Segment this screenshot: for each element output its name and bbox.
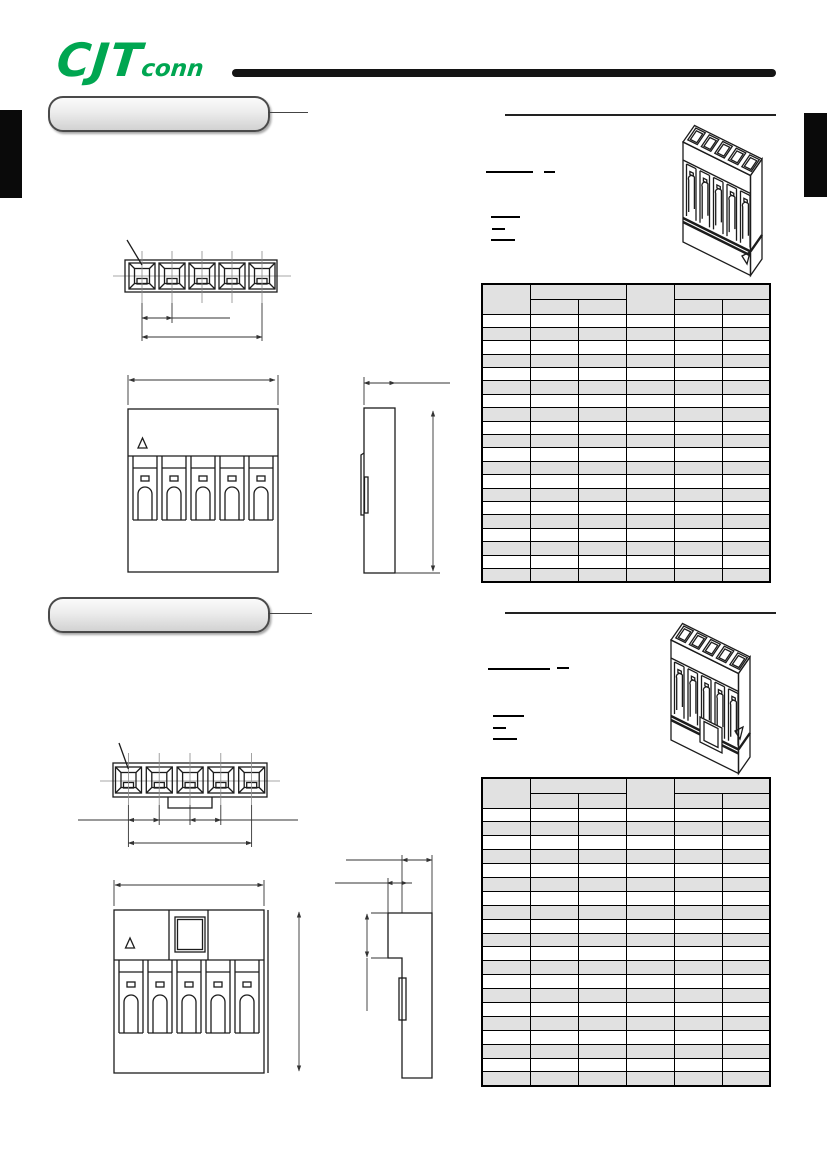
table-row <box>482 421 770 434</box>
table-cell <box>578 864 626 878</box>
table-cell <box>674 448 722 461</box>
table-cell <box>722 1044 770 1058</box>
table-cell <box>626 368 674 381</box>
table-cell <box>722 961 770 975</box>
table-cell <box>722 314 770 327</box>
table-cell <box>626 394 674 407</box>
table-row <box>482 822 770 836</box>
table-cell <box>482 475 530 488</box>
table-cell <box>674 1058 722 1072</box>
table-cell <box>578 905 626 919</box>
table-cell <box>722 1016 770 1030</box>
table-cell <box>626 933 674 947</box>
table-row <box>482 891 770 905</box>
table-row <box>482 836 770 850</box>
table-row <box>482 501 770 514</box>
table-cell <box>722 528 770 541</box>
table-cell <box>722 1058 770 1072</box>
table-cell <box>626 354 674 367</box>
table-cell <box>722 421 770 434</box>
table-cell <box>722 975 770 989</box>
table-row <box>482 435 770 448</box>
table-cell <box>482 1002 530 1016</box>
table-cell <box>674 354 722 367</box>
table-cell <box>578 341 626 354</box>
table-cell <box>482 1072 530 1086</box>
table-cell <box>482 381 530 394</box>
table-header-cell <box>674 284 770 299</box>
table-cell <box>674 555 722 568</box>
table-cell <box>530 1058 578 1072</box>
table-cell <box>578 354 626 367</box>
table-cell <box>530 368 578 381</box>
table-cell <box>626 947 674 961</box>
table-header-cell <box>482 284 530 314</box>
table-cell <box>722 354 770 367</box>
section-1-note-underline <box>491 239 515 241</box>
table-cell <box>722 568 770 581</box>
table-cell <box>578 488 626 501</box>
table-cell <box>578 568 626 581</box>
table-cell <box>530 435 578 448</box>
section-2-front-view-drawing <box>110 875 315 1075</box>
table-cell <box>626 905 674 919</box>
table-cell <box>530 808 578 822</box>
table-cell <box>674 836 722 850</box>
table-cell <box>578 1072 626 1086</box>
polarity-triangle-icon <box>126 938 135 948</box>
table-header-cell <box>530 778 626 793</box>
table-cell <box>674 381 722 394</box>
table-row <box>482 568 770 581</box>
table-cell <box>722 408 770 421</box>
table-cell <box>674 919 722 933</box>
table-row <box>482 864 770 878</box>
table-cell <box>530 327 578 340</box>
table-cell <box>674 933 722 947</box>
table-cell <box>482 368 530 381</box>
table-cell <box>722 555 770 568</box>
table-cell <box>626 961 674 975</box>
table-cell <box>626 555 674 568</box>
housing-profile <box>388 913 432 1078</box>
latch-window <box>175 917 205 952</box>
table-cell <box>482 555 530 568</box>
table-cell <box>674 461 722 474</box>
table-subheader-cell <box>530 299 578 314</box>
table-row <box>482 808 770 822</box>
table-cell <box>626 822 674 836</box>
table-cell <box>482 961 530 975</box>
table-cell <box>674 341 722 354</box>
table-cell <box>530 542 578 555</box>
datasheet-page: CJTconn <box>0 0 827 1169</box>
brand-logo-main: CJT <box>54 33 145 87</box>
table-cell <box>578 947 626 961</box>
table-cell <box>482 850 530 864</box>
table-cell <box>674 864 722 878</box>
table-row <box>482 1044 770 1058</box>
table-row <box>482 1072 770 1086</box>
header-bar <box>232 69 776 77</box>
table-row <box>482 975 770 989</box>
table-cell <box>674 822 722 836</box>
table-cell <box>482 919 530 933</box>
table-cell <box>482 568 530 581</box>
table-cell <box>578 421 626 434</box>
table-row <box>482 919 770 933</box>
right-edge-tab <box>804 113 827 197</box>
table-cell <box>578 368 626 381</box>
table-cell <box>578 327 626 340</box>
table-cell <box>578 381 626 394</box>
table-cell <box>626 850 674 864</box>
table-cell <box>674 975 722 989</box>
table-cell <box>482 501 530 514</box>
section-1-front-view-drawing <box>118 372 288 577</box>
table-cell <box>722 542 770 555</box>
table-cell <box>530 864 578 878</box>
table-cell <box>482 1016 530 1030</box>
table-cell <box>530 891 578 905</box>
table-cell <box>722 515 770 528</box>
table-cell <box>626 877 674 891</box>
table-cell <box>578 1016 626 1030</box>
table-cell <box>530 1002 578 1016</box>
table-cell <box>482 435 530 448</box>
section-1-rule <box>505 114 776 116</box>
table-cell <box>626 421 674 434</box>
table-cell <box>482 488 530 501</box>
table-cell <box>626 975 674 989</box>
table-header-cell <box>530 284 626 299</box>
section-2-rule <box>505 612 776 614</box>
section-2-note-underline <box>493 715 524 717</box>
parts-table <box>481 777 771 1087</box>
table-cell <box>626 501 674 514</box>
table-cell <box>674 475 722 488</box>
table-cell <box>578 822 626 836</box>
section-1-note-underline <box>486 171 533 173</box>
table-cell <box>482 394 530 407</box>
table-cell <box>722 947 770 961</box>
section-1-pill-leader-line <box>268 112 308 113</box>
table-cell <box>626 1072 674 1086</box>
table-cell <box>626 461 674 474</box>
table-cell <box>722 933 770 947</box>
table-cell <box>482 864 530 878</box>
table-row <box>482 368 770 381</box>
table-cell <box>578 933 626 947</box>
table-cell <box>530 850 578 864</box>
table-cell <box>578 314 626 327</box>
table-cell <box>674 1002 722 1016</box>
table-cell <box>530 975 578 989</box>
table-cell <box>626 542 674 555</box>
table-cell <box>530 448 578 461</box>
table-cell <box>530 568 578 581</box>
table-row <box>482 555 770 568</box>
table-subheader-cell <box>674 793 722 808</box>
table-cell <box>674 808 722 822</box>
table-cell <box>530 1044 578 1058</box>
parts-table <box>481 283 771 583</box>
table-cell <box>626 989 674 1003</box>
table-subheader-cell <box>722 299 770 314</box>
table-cell <box>626 1044 674 1058</box>
table-subheader-cell <box>578 793 626 808</box>
table-cell <box>578 555 626 568</box>
table-cell <box>530 461 578 474</box>
table-subheader-cell <box>530 793 578 808</box>
table-cell <box>722 448 770 461</box>
section-2-note-underline <box>493 738 517 740</box>
table-cell <box>482 327 530 340</box>
table-row <box>482 475 770 488</box>
table-cell <box>530 501 578 514</box>
table-cell <box>626 448 674 461</box>
table-cell <box>626 314 674 327</box>
table-cell <box>530 488 578 501</box>
table-row <box>482 947 770 961</box>
table-cell <box>482 354 530 367</box>
section-2-note-underline <box>493 727 506 729</box>
table-cell <box>530 1030 578 1044</box>
table-row <box>482 327 770 340</box>
table-cell <box>530 394 578 407</box>
table-cell <box>578 475 626 488</box>
table-row <box>482 989 770 1003</box>
table-cell <box>530 933 578 947</box>
table-cell <box>578 435 626 448</box>
table-row <box>482 341 770 354</box>
left-edge-tab <box>0 110 22 198</box>
table-row <box>482 314 770 327</box>
section-2-isometric-drawing <box>658 618 793 778</box>
table-cell <box>578 808 626 822</box>
table-cell <box>530 822 578 836</box>
table-cell <box>530 341 578 354</box>
table-row <box>482 394 770 407</box>
table-cell <box>578 515 626 528</box>
table-cell <box>578 975 626 989</box>
table-cell <box>722 864 770 878</box>
table-cell <box>530 989 578 1003</box>
table-cell <box>722 1030 770 1044</box>
table-cell <box>722 327 770 340</box>
table-cell <box>530 555 578 568</box>
table-cell <box>626 891 674 905</box>
table-subheader-cell <box>722 793 770 808</box>
table-row <box>482 850 770 864</box>
table-cell <box>674 850 722 864</box>
leader-line <box>119 743 128 769</box>
table-cell <box>674 989 722 1003</box>
table-cell <box>482 528 530 541</box>
table-cell <box>482 836 530 850</box>
section-1-note-underline <box>544 171 555 173</box>
table-cell <box>674 421 722 434</box>
table-cell <box>482 1058 530 1072</box>
table-cell <box>722 891 770 905</box>
table-cell <box>626 864 674 878</box>
table-cell <box>482 341 530 354</box>
table-cell <box>530 1072 578 1086</box>
table-row <box>482 877 770 891</box>
table-cell <box>482 1044 530 1058</box>
table-cell <box>530 515 578 528</box>
table-row <box>482 933 770 947</box>
table-cell <box>626 1002 674 1016</box>
table-cell <box>530 905 578 919</box>
table-cell <box>482 975 530 989</box>
brand-logo: CJTconn <box>54 34 207 86</box>
table-cell <box>626 568 674 581</box>
table-cell <box>578 501 626 514</box>
table-cell <box>626 341 674 354</box>
table-cell <box>578 408 626 421</box>
table-cell <box>530 1016 578 1030</box>
table-cell <box>674 1072 722 1086</box>
table-cell <box>482 989 530 1003</box>
table-cell <box>674 435 722 448</box>
table-cell <box>674 408 722 421</box>
table-cell <box>530 919 578 933</box>
table-cell <box>482 542 530 555</box>
table-row <box>482 408 770 421</box>
table-cell <box>626 836 674 850</box>
table-cell <box>578 542 626 555</box>
table-cell <box>482 461 530 474</box>
table-cell <box>722 1002 770 1016</box>
table-cell <box>626 1016 674 1030</box>
table-cell <box>674 394 722 407</box>
table-header-cell <box>674 778 770 793</box>
table-cell <box>722 501 770 514</box>
table-cell <box>722 919 770 933</box>
section-2-note-underline <box>488 668 550 670</box>
table-cell <box>482 408 530 421</box>
table-cell <box>674 961 722 975</box>
table-cell <box>674 568 722 581</box>
table-cell <box>626 515 674 528</box>
table-cell <box>674 542 722 555</box>
table-cell <box>482 877 530 891</box>
table-row <box>482 381 770 394</box>
table-cell <box>674 528 722 541</box>
table-cell <box>530 947 578 961</box>
table-cell <box>578 1044 626 1058</box>
table-cell <box>530 961 578 975</box>
table-cell <box>674 368 722 381</box>
table-cell <box>722 488 770 501</box>
table-cell <box>578 1030 626 1044</box>
table-cell <box>578 891 626 905</box>
table-cell <box>530 877 578 891</box>
table-cell <box>578 461 626 474</box>
table-cell <box>674 1030 722 1044</box>
table-row <box>482 448 770 461</box>
table-row <box>482 1016 770 1030</box>
table-row <box>482 528 770 541</box>
table-cell <box>674 947 722 961</box>
section-1-note-underline <box>491 216 520 218</box>
table-cell <box>722 877 770 891</box>
table-cell <box>482 905 530 919</box>
table-cell <box>482 947 530 961</box>
table-cell <box>674 1044 722 1058</box>
table-header-cell <box>626 284 674 314</box>
table-cell <box>482 515 530 528</box>
table-cell <box>626 808 674 822</box>
table-cell <box>722 381 770 394</box>
table-cell <box>482 822 530 836</box>
section-1-pill-header <box>48 96 270 132</box>
table-cell <box>674 877 722 891</box>
table-cell <box>578 448 626 461</box>
table-cell <box>482 891 530 905</box>
table-cell <box>530 408 578 421</box>
table-cell <box>722 368 770 381</box>
table-subheader-cell <box>578 299 626 314</box>
table-cell <box>722 836 770 850</box>
brand-logo-sub: conn <box>140 56 205 82</box>
section-2-top-view-drawing <box>75 735 305 860</box>
table-cell <box>722 822 770 836</box>
table-cell <box>722 905 770 919</box>
table-cell <box>578 919 626 933</box>
table-row <box>482 461 770 474</box>
table-cell <box>482 933 530 947</box>
table-subheader-cell <box>674 299 722 314</box>
latch-window-boss <box>700 717 722 753</box>
table-cell <box>722 808 770 822</box>
table-row <box>482 961 770 975</box>
table-header-cell <box>482 778 530 808</box>
section-2-pill-header <box>48 597 270 633</box>
table-cell <box>626 475 674 488</box>
table-cell <box>530 314 578 327</box>
polarity-triangle-icon <box>138 438 147 448</box>
table-cell <box>626 1058 674 1072</box>
section-1-top-view-drawing <box>105 235 345 345</box>
table-row <box>482 1058 770 1072</box>
table-cell <box>722 394 770 407</box>
iso-side-face <box>751 159 763 276</box>
table-cell <box>578 850 626 864</box>
table-cell <box>482 1030 530 1044</box>
table-cell <box>578 1058 626 1072</box>
iso-side-face <box>739 657 751 774</box>
table-cell <box>578 989 626 1003</box>
table-cell <box>722 341 770 354</box>
table-cell <box>674 314 722 327</box>
table-cell <box>530 354 578 367</box>
table-cell <box>482 314 530 327</box>
table-cell <box>626 435 674 448</box>
table-cell <box>626 488 674 501</box>
section-2-note-underline <box>557 667 569 669</box>
table-row <box>482 354 770 367</box>
table-cell <box>674 905 722 919</box>
table-cell <box>482 808 530 822</box>
table-row <box>482 905 770 919</box>
leader-line <box>127 240 142 265</box>
table-cell <box>674 1016 722 1030</box>
table-cell <box>578 961 626 975</box>
table-cell <box>722 475 770 488</box>
table-cell <box>530 421 578 434</box>
